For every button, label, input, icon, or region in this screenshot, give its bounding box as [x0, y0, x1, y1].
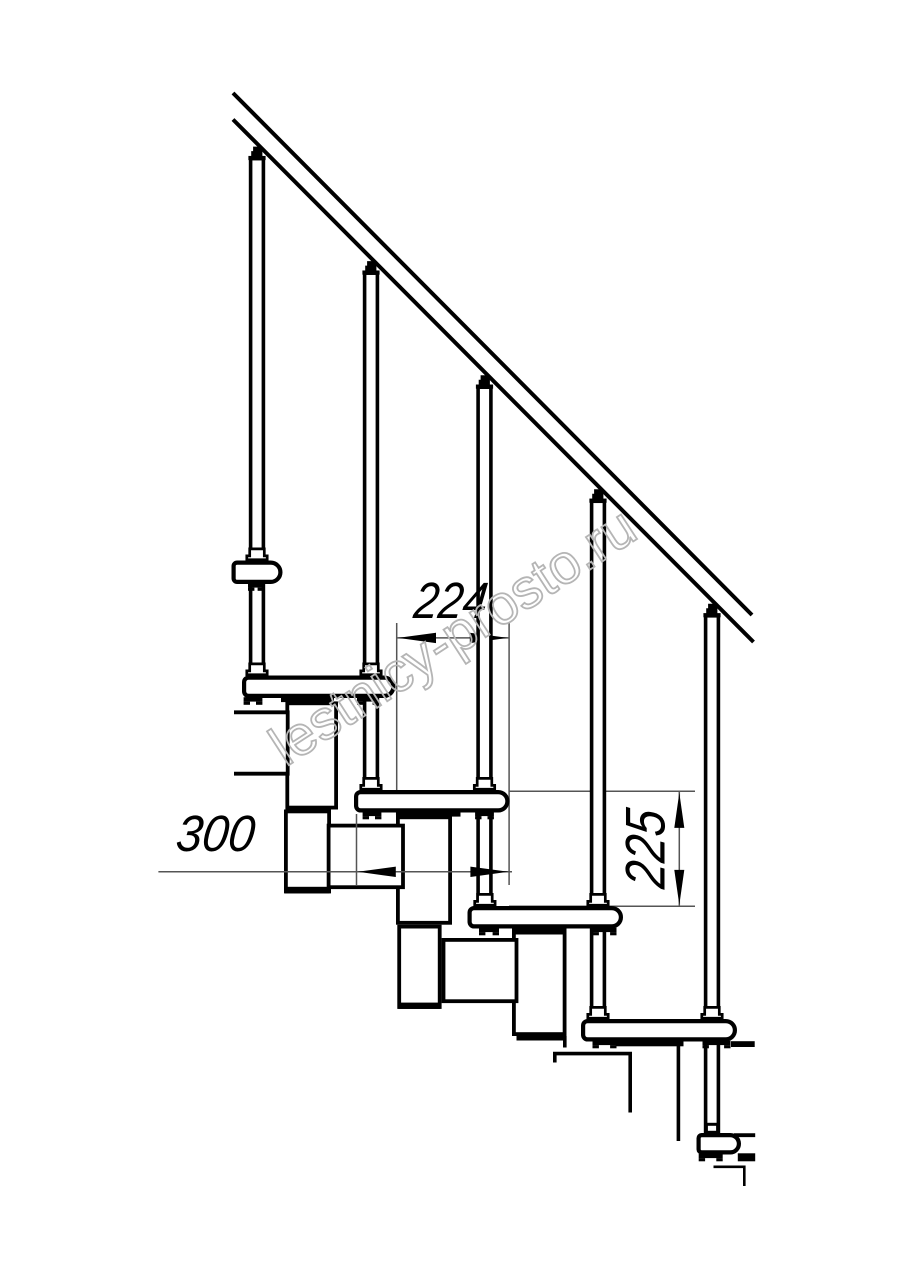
- svg-text:225: 225: [614, 805, 677, 892]
- svg-text:300: 300: [173, 805, 258, 862]
